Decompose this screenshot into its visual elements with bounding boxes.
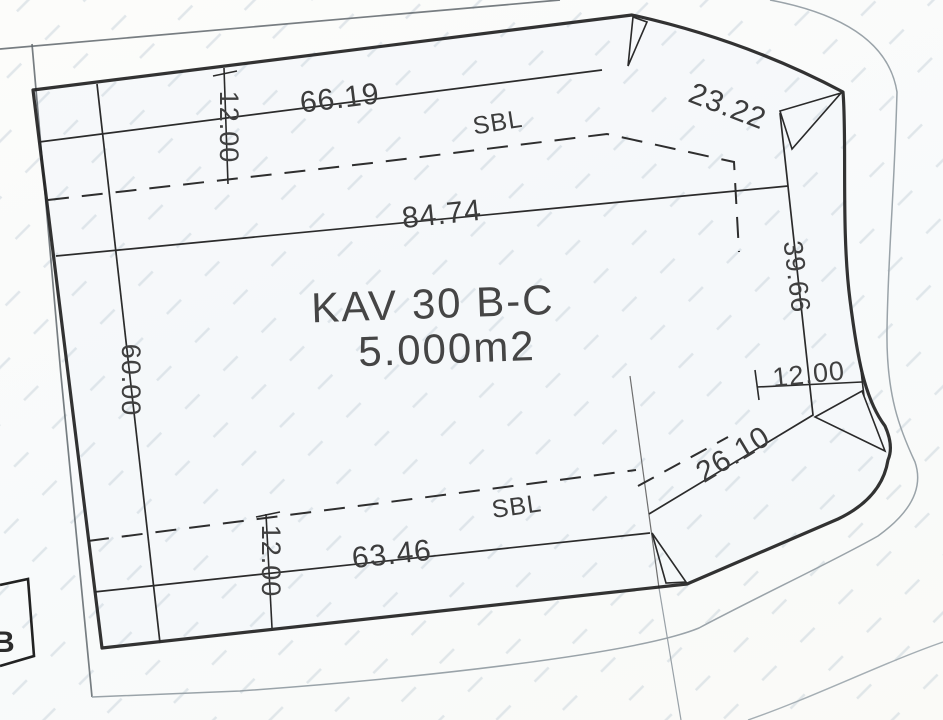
site-plan-canvas: B 66.19 12.00 SBL 23.22 84.74 KAV 30 B-C… <box>0 0 943 720</box>
dim-text-setback-offset-bottom: 12.00 <box>256 525 286 598</box>
site-plan-drawing: B 66.19 12.00 SBL 23.22 84.74 KAV 30 B-C… <box>0 0 943 720</box>
dim-text-left-edge: 60.00 <box>116 344 146 417</box>
parcel-area: 5.000m2 <box>357 322 536 375</box>
dim-text-setback-offset-top: 12.00 <box>214 91 244 164</box>
neighbor-plot-label: B <box>0 626 15 659</box>
